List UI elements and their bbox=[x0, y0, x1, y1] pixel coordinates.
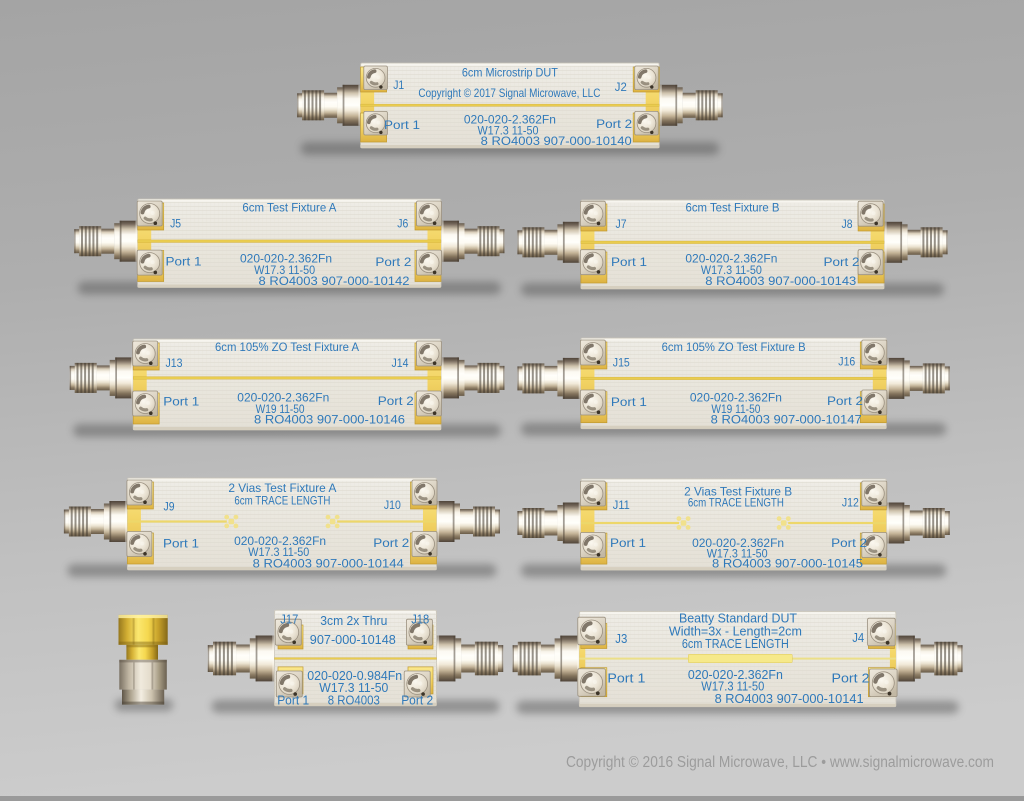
svg-text:J8: J8 bbox=[842, 217, 853, 231]
svg-text:J15: J15 bbox=[613, 356, 630, 370]
svg-text:J13: J13 bbox=[166, 356, 183, 370]
svg-text:Port 2: Port 2 bbox=[827, 394, 863, 408]
svg-text:J16: J16 bbox=[838, 354, 855, 368]
svg-text:Port 1: Port 1 bbox=[611, 255, 647, 269]
svg-text:6cm Microstrip DUT: 6cm Microstrip DUT bbox=[462, 66, 558, 80]
svg-text:Port 1: Port 1 bbox=[163, 536, 199, 550]
svg-text:Port 1: Port 1 bbox=[384, 118, 420, 132]
svg-text:Port 2: Port 2 bbox=[832, 671, 870, 686]
svg-text:J4: J4 bbox=[852, 630, 864, 645]
svg-text:J2: J2 bbox=[615, 80, 627, 94]
svg-text:6cm 105% ZO Test Fixture A: 6cm 105% ZO Test Fixture A bbox=[215, 340, 359, 354]
svg-text:J7: J7 bbox=[616, 217, 627, 231]
svg-text:Copyright © 2016 Signal Microw: Copyright © 2016 Signal Microwave, LLC •… bbox=[566, 754, 994, 771]
svg-text:8 RO4003: 8 RO4003 bbox=[328, 694, 380, 708]
svg-text:6cm Test Fixture A: 6cm Test Fixture A bbox=[242, 201, 336, 215]
svg-text:J18: J18 bbox=[411, 613, 429, 627]
svg-text:J10: J10 bbox=[384, 498, 401, 512]
svg-text:6cm Test Fixture B: 6cm Test Fixture B bbox=[686, 201, 780, 215]
svg-text:Port 1: Port 1 bbox=[611, 395, 647, 409]
svg-text:Port 1: Port 1 bbox=[163, 395, 199, 409]
svg-text:Port 2: Port 2 bbox=[824, 255, 860, 269]
svg-text:8 RO4003 907-000-10147: 8 RO4003 907-000-10147 bbox=[711, 413, 862, 427]
svg-text:Copyright © 2017 Signal Microw: Copyright © 2017 Signal Microwave, LLC bbox=[418, 86, 600, 100]
svg-text:J9: J9 bbox=[164, 500, 175, 514]
svg-text:Port 2: Port 2 bbox=[378, 394, 414, 408]
svg-text:J3: J3 bbox=[615, 631, 627, 646]
svg-text:J17: J17 bbox=[280, 613, 298, 627]
svg-text:3cm 2x Thru: 3cm 2x Thru bbox=[320, 614, 387, 628]
svg-text:Port 2: Port 2 bbox=[375, 255, 411, 269]
svg-text:8 RO4003 907-000-10146: 8 RO4003 907-000-10146 bbox=[254, 413, 405, 427]
svg-text:J6: J6 bbox=[397, 217, 408, 231]
svg-text:6cm 105% ZO Test Fixture B: 6cm 105% ZO Test Fixture B bbox=[662, 340, 806, 354]
svg-text:8 RO4003 907-000-10143: 8 RO4003 907-000-10143 bbox=[705, 274, 856, 288]
svg-text:Port 1: Port 1 bbox=[607, 671, 645, 686]
svg-text:8 RO4003 907-000-10140: 8 RO4003 907-000-10140 bbox=[481, 134, 632, 148]
svg-text:Port 2: Port 2 bbox=[373, 536, 409, 550]
svg-text:Port 2: Port 2 bbox=[401, 694, 433, 708]
svg-text:J12: J12 bbox=[842, 496, 859, 510]
svg-text:Port 2: Port 2 bbox=[831, 536, 867, 550]
svg-text:Port 2: Port 2 bbox=[596, 117, 632, 131]
svg-text:8 RO4003 907-000-10142: 8 RO4003 907-000-10142 bbox=[259, 274, 410, 288]
svg-text:Port 1: Port 1 bbox=[166, 255, 202, 269]
svg-text:8 RO4003 907-000-10141: 8 RO4003 907-000-10141 bbox=[715, 691, 864, 706]
svg-text:6cm TRACE LENGTH: 6cm TRACE LENGTH bbox=[688, 496, 784, 510]
svg-text:Port 1: Port 1 bbox=[610, 536, 646, 550]
svg-text:J14: J14 bbox=[392, 356, 409, 370]
svg-text:8 RO4003 907-000-10145: 8 RO4003 907-000-10145 bbox=[712, 556, 863, 570]
svg-text:8 RO4003 907-000-10144: 8 RO4003 907-000-10144 bbox=[253, 556, 404, 570]
svg-text:J11: J11 bbox=[613, 498, 630, 512]
svg-text:Port 1: Port 1 bbox=[277, 694, 309, 708]
svg-text:907-000-10148: 907-000-10148 bbox=[310, 633, 396, 647]
svg-text:J5: J5 bbox=[170, 216, 181, 230]
svg-text:J1: J1 bbox=[393, 78, 404, 92]
svg-text:6cm TRACE LENGTH: 6cm TRACE LENGTH bbox=[234, 493, 330, 507]
svg-text:6cm TRACE LENGTH: 6cm TRACE LENGTH bbox=[682, 636, 789, 651]
